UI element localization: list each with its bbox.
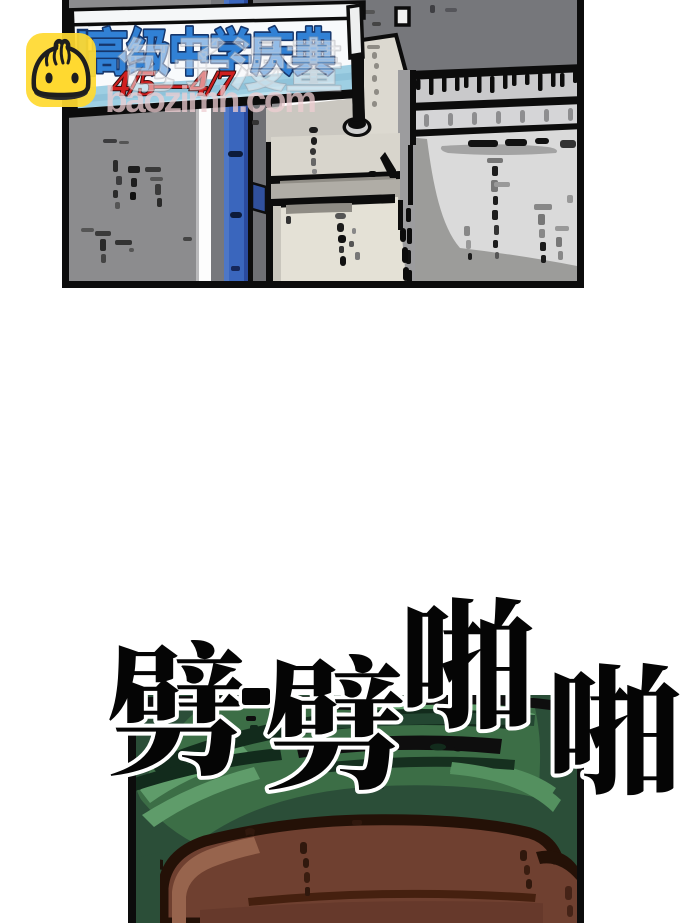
svg-text:baozimh.com: baozimh.com (105, 79, 317, 120)
